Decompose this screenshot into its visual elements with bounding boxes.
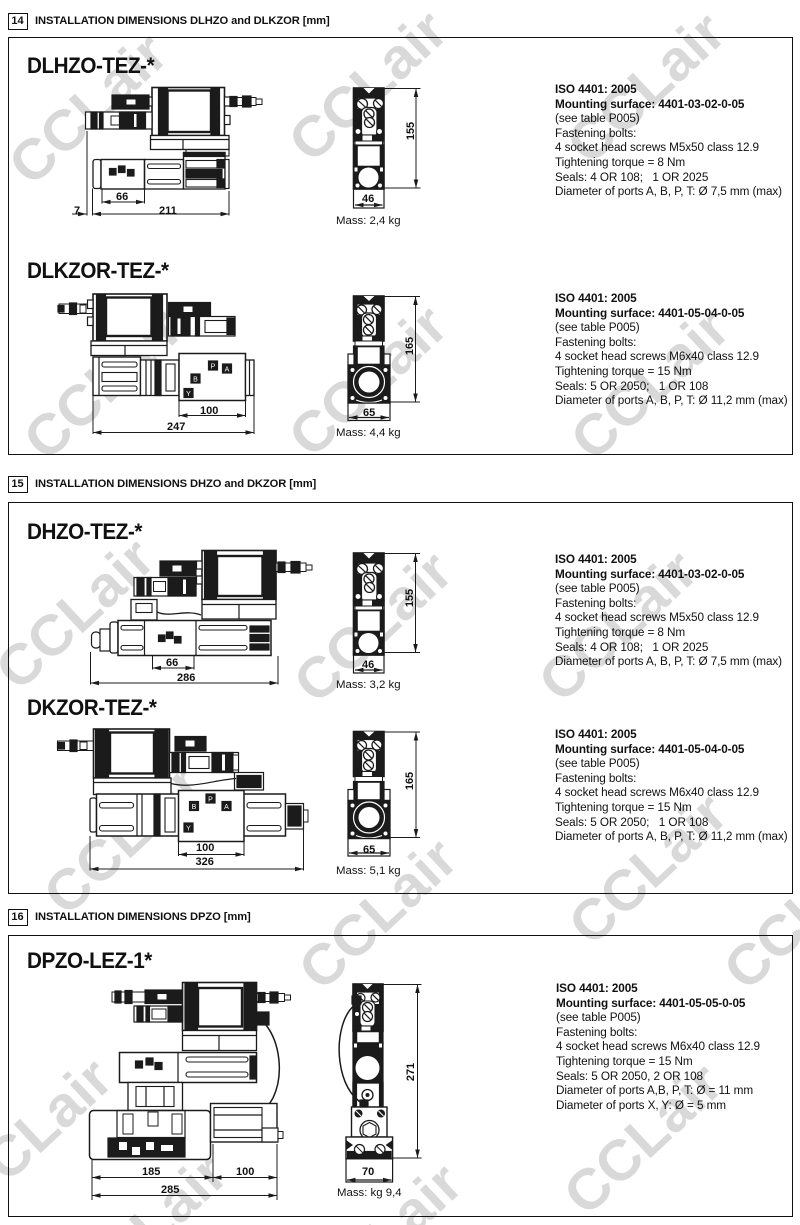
svg-text:A: A <box>224 804 229 811</box>
svg-text:A: A <box>225 367 230 374</box>
svg-text:Y: Y <box>186 826 191 833</box>
svg-text:B: B <box>192 804 197 811</box>
svg-text:Y: Y <box>186 391 191 398</box>
svg-text:B: B <box>193 377 198 384</box>
svg-text:P: P <box>211 364 216 371</box>
svg-text:P: P <box>208 797 213 804</box>
